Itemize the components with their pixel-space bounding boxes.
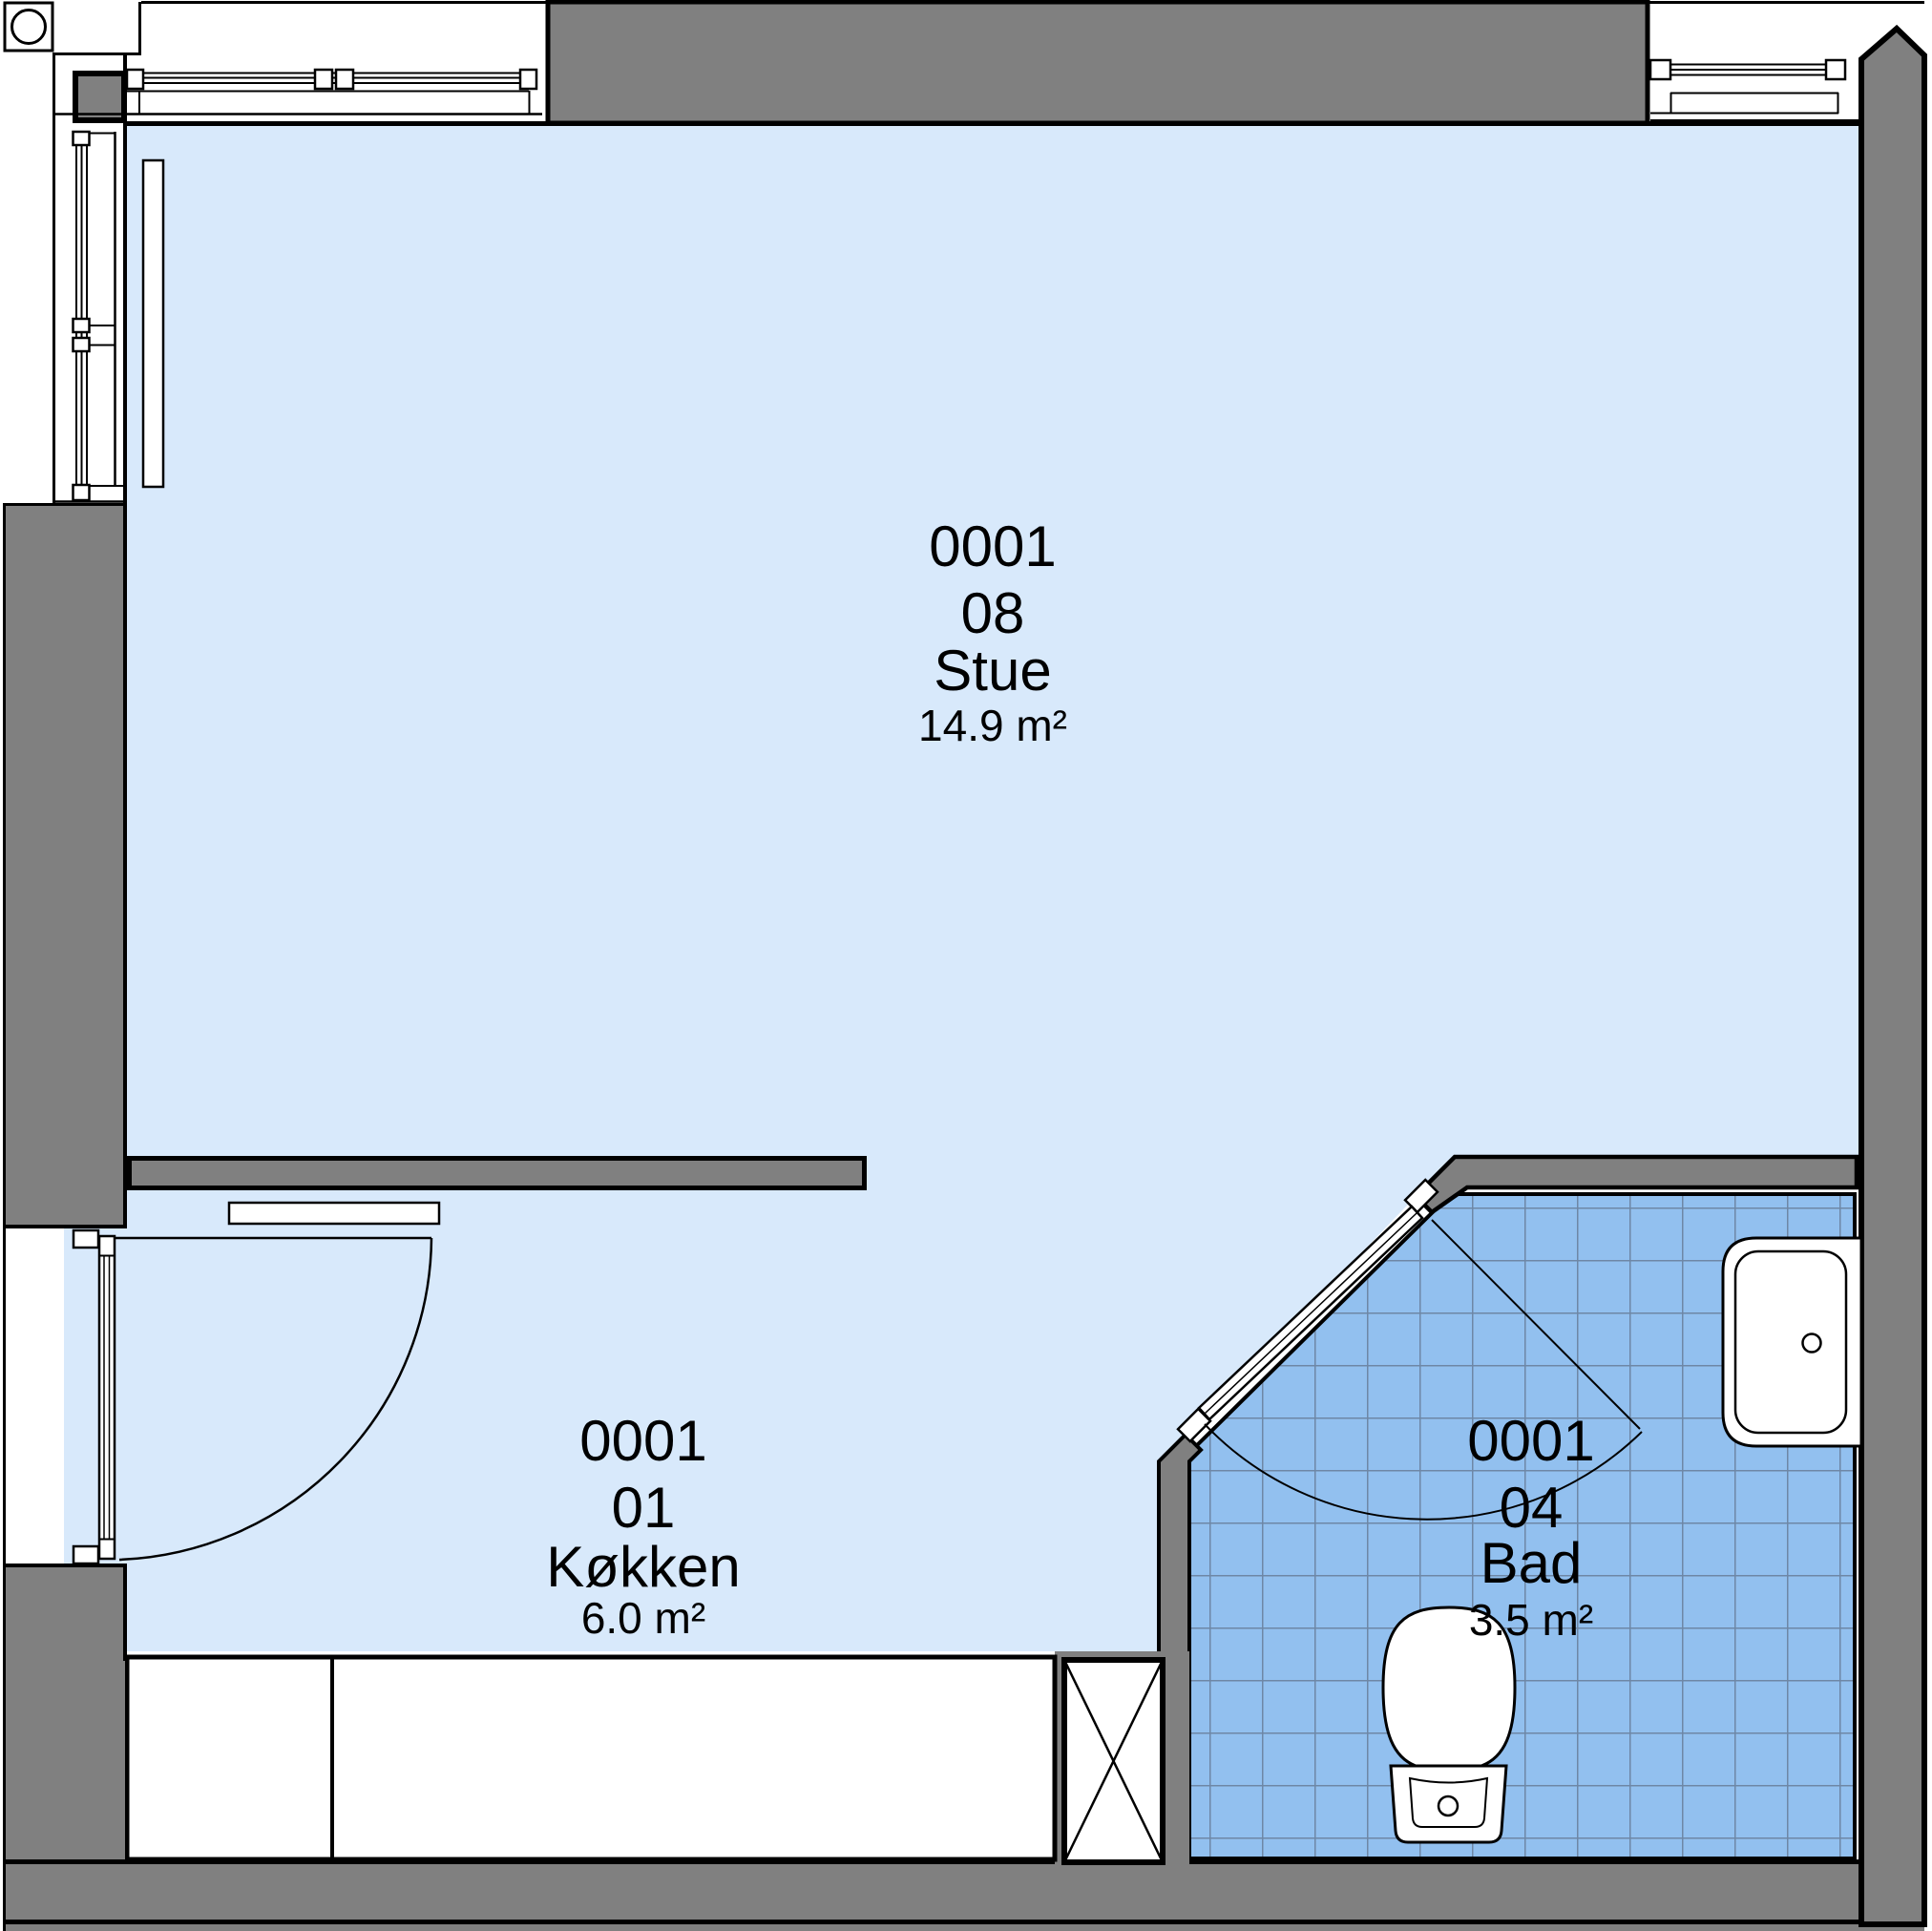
kitchen-counter <box>127 1657 1055 1859</box>
room-area-bad: 3.5 m² <box>1469 1598 1593 1642</box>
interior-wall-kitchen <box>130 1159 865 1188</box>
wall-shelf <box>229 1203 439 1224</box>
room-area-kokken: 6.0 m² <box>581 1596 705 1640</box>
room-name-bad: Bad <box>1480 1535 1583 1592</box>
room-unit-bad: 0001 <box>1467 1413 1594 1470</box>
room-name-stue: Stue <box>934 642 1051 700</box>
washbasin <box>1723 1238 1861 1446</box>
room-name-kokken: Køkken <box>546 1539 740 1596</box>
room-number-stue: 08 <box>961 585 1025 642</box>
floor-plan-page: 0001 08 Stue 14.9 m² 0001 01 Køkken 6.0 … <box>0 0 1932 1931</box>
window-top-right <box>1650 60 1859 121</box>
floor-plan-drawing <box>0 0 1932 1931</box>
room-number-kokken: 01 <box>612 1480 676 1537</box>
room-area-stue: 14.9 m² <box>918 703 1067 747</box>
exterior-wall-bottom <box>6 1861 1924 1931</box>
radiator <box>143 160 163 487</box>
room-number-bad: 04 <box>1500 1480 1564 1537</box>
exterior-wall-left <box>5 122 126 1931</box>
exterior-wall-right <box>1861 29 1924 1924</box>
window-top-left <box>55 70 542 115</box>
room-unit-stue: 0001 <box>929 518 1056 576</box>
room-unit-kokken: 0001 <box>579 1413 706 1470</box>
corner-marker-icon <box>5 3 52 51</box>
service-shaft <box>1064 1660 1163 1862</box>
